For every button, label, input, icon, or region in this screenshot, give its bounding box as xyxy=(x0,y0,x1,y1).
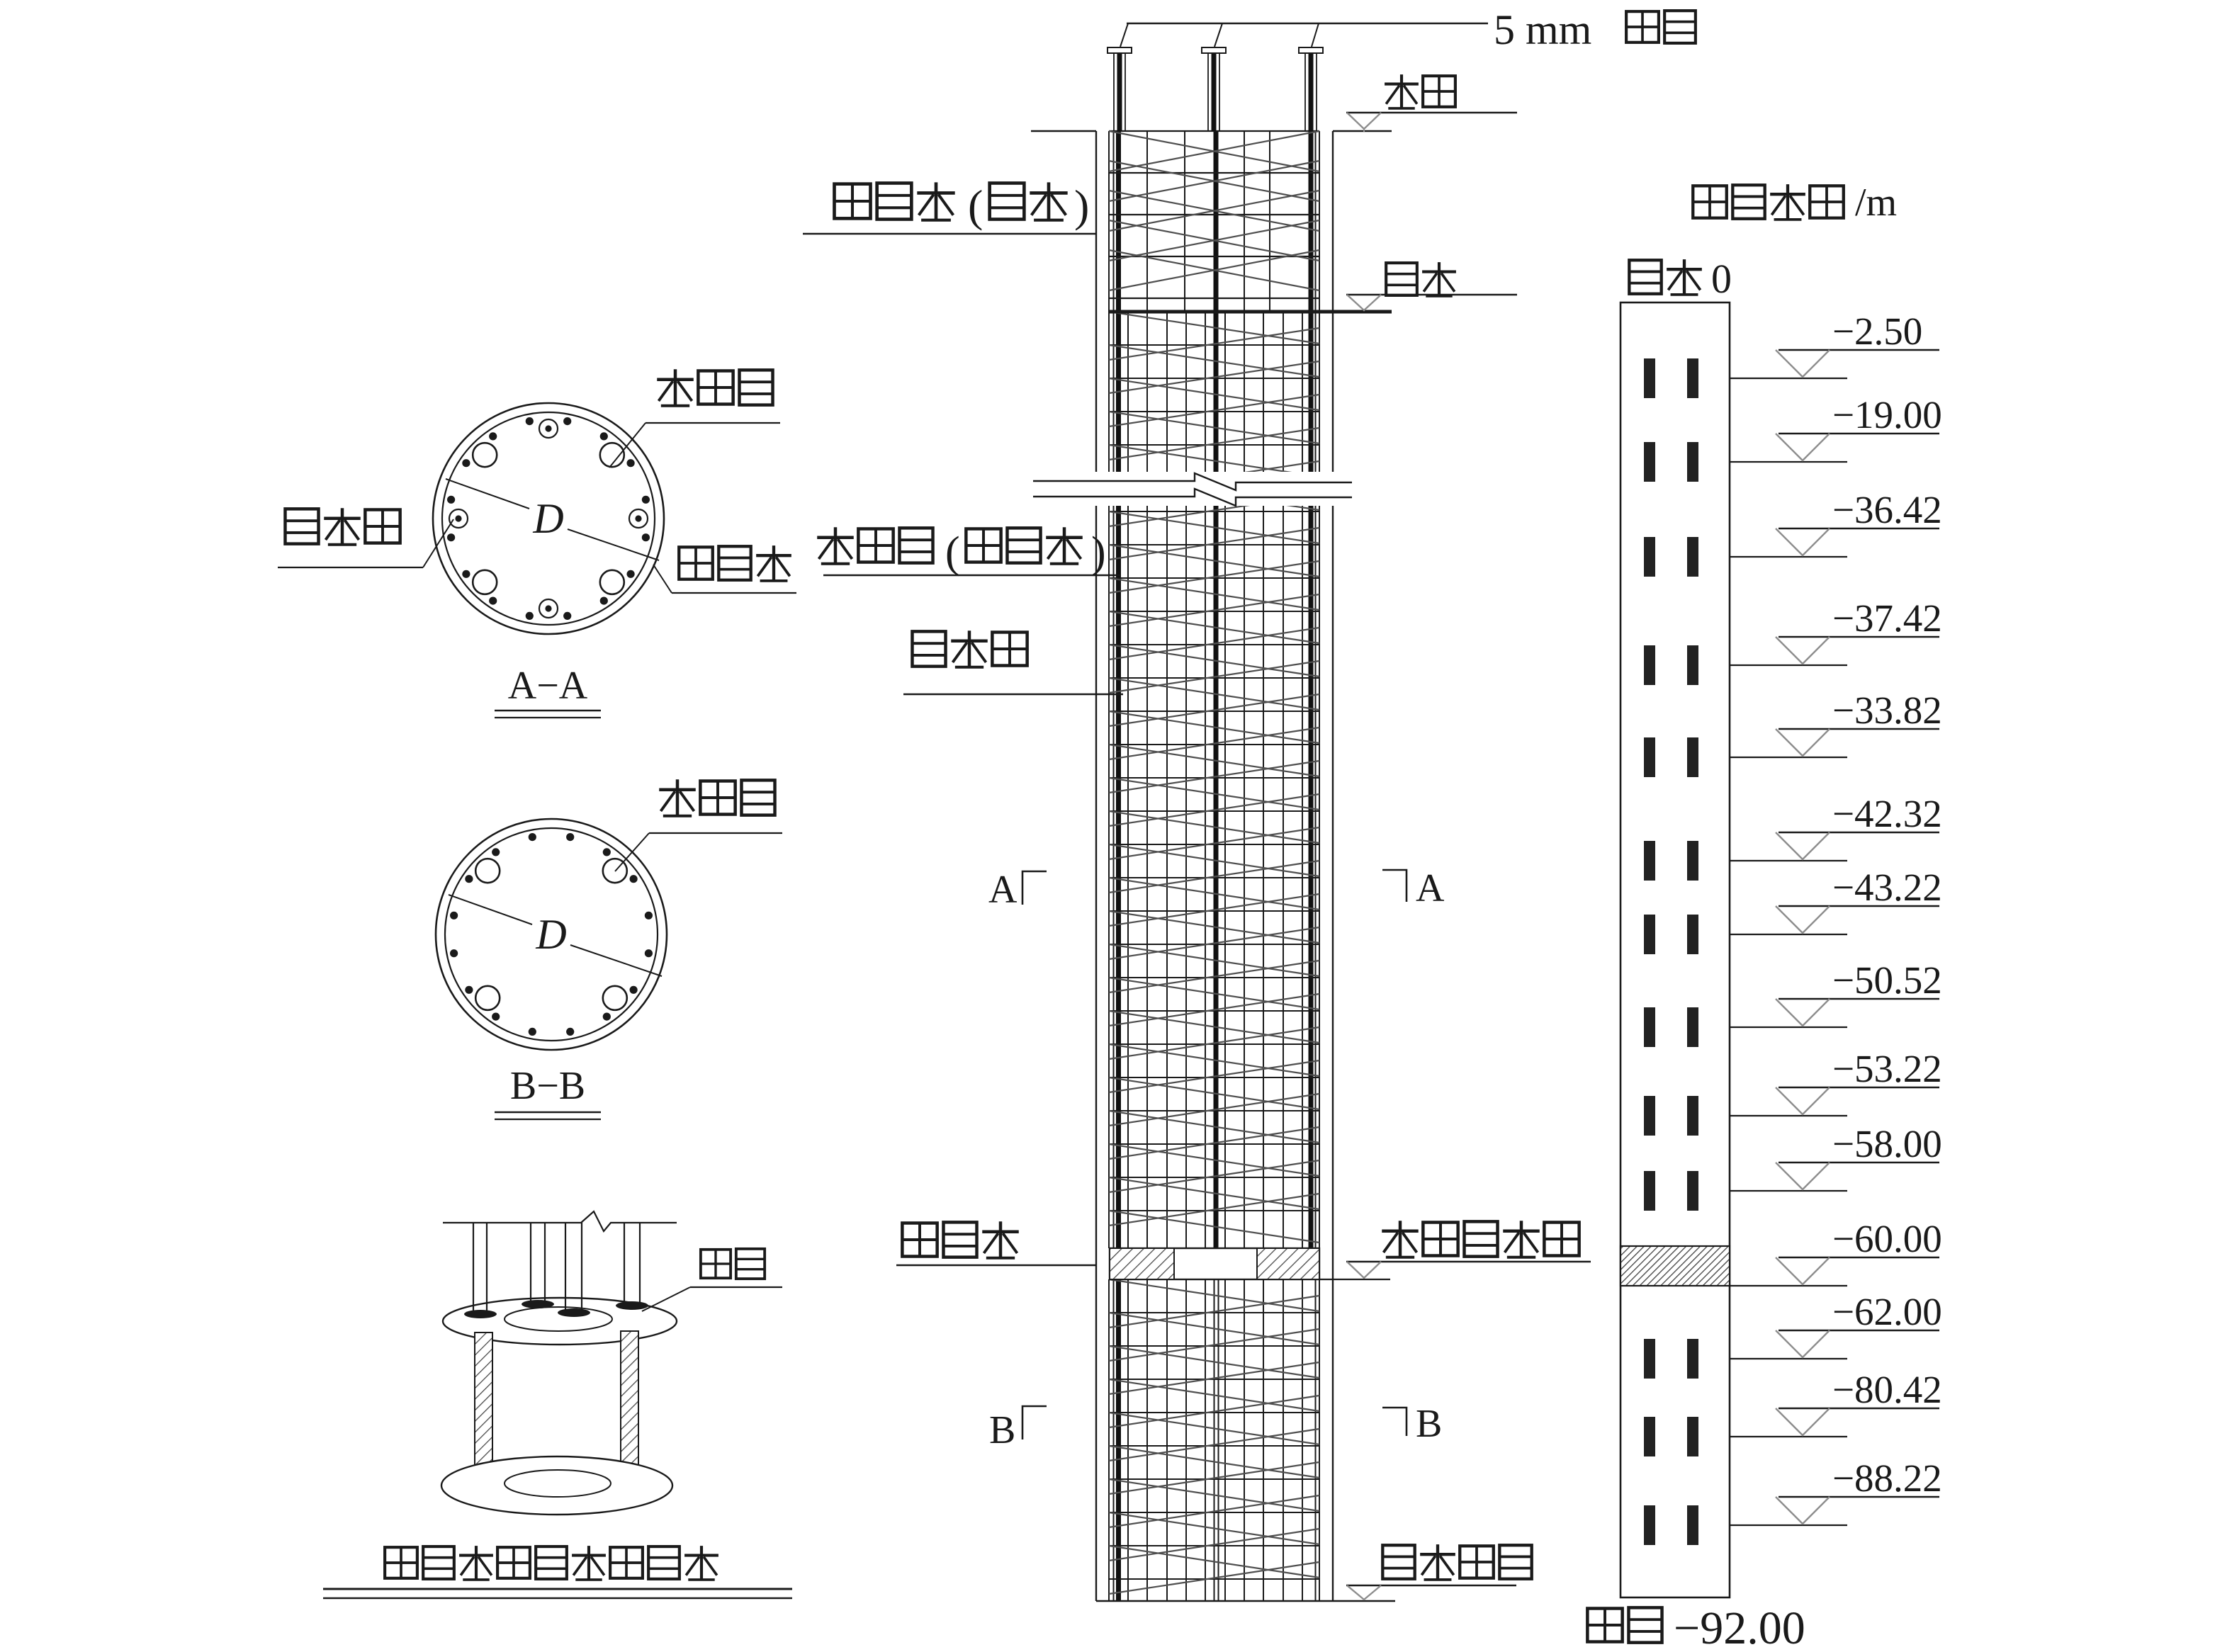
svg-text:−60.00: −60.00 xyxy=(1832,1217,1942,1260)
svg-text:−53.22: −53.22 xyxy=(1832,1047,1942,1090)
svg-text:): ) xyxy=(1074,181,1089,231)
svg-text:−80.42: −80.42 xyxy=(1832,1368,1942,1411)
svg-text:−50.52: −50.52 xyxy=(1832,958,1942,1002)
svg-text:A: A xyxy=(988,868,1018,912)
svg-text:D: D xyxy=(535,911,566,958)
svg-text:B−B: B−B xyxy=(510,1064,585,1108)
svg-text:B: B xyxy=(989,1408,1015,1452)
svg-text:−19.00: −19.00 xyxy=(1832,393,1942,436)
svg-text:D: D xyxy=(532,495,563,542)
svg-text:/m: /m xyxy=(1855,181,1897,225)
svg-text:−37.42: −37.42 xyxy=(1832,596,1942,640)
svg-text:(: ( xyxy=(968,181,983,231)
svg-text:−43.22: −43.22 xyxy=(1832,866,1942,909)
svg-text:): ) xyxy=(1091,528,1106,577)
svg-text:5 mm: 5 mm xyxy=(1494,6,1591,53)
svg-text:−62.00: −62.00 xyxy=(1832,1290,1942,1333)
svg-text:(: ( xyxy=(945,528,960,577)
svg-text:−92.00: −92.00 xyxy=(1674,1602,1805,1652)
svg-text:−33.82: −33.82 xyxy=(1832,689,1942,732)
svg-text:−42.32: −42.32 xyxy=(1832,792,1942,835)
svg-text:B: B xyxy=(1416,1402,1442,1446)
svg-text:0: 0 xyxy=(1711,256,1732,302)
svg-text:−88.22: −88.22 xyxy=(1832,1456,1942,1500)
svg-text:A: A xyxy=(1416,866,1445,910)
svg-text:A−A: A−A xyxy=(508,664,588,708)
svg-text:−2.50: −2.50 xyxy=(1832,310,1922,353)
svg-text:−58.00: −58.00 xyxy=(1832,1122,1942,1165)
svg-text:−36.42: −36.42 xyxy=(1832,488,1942,531)
